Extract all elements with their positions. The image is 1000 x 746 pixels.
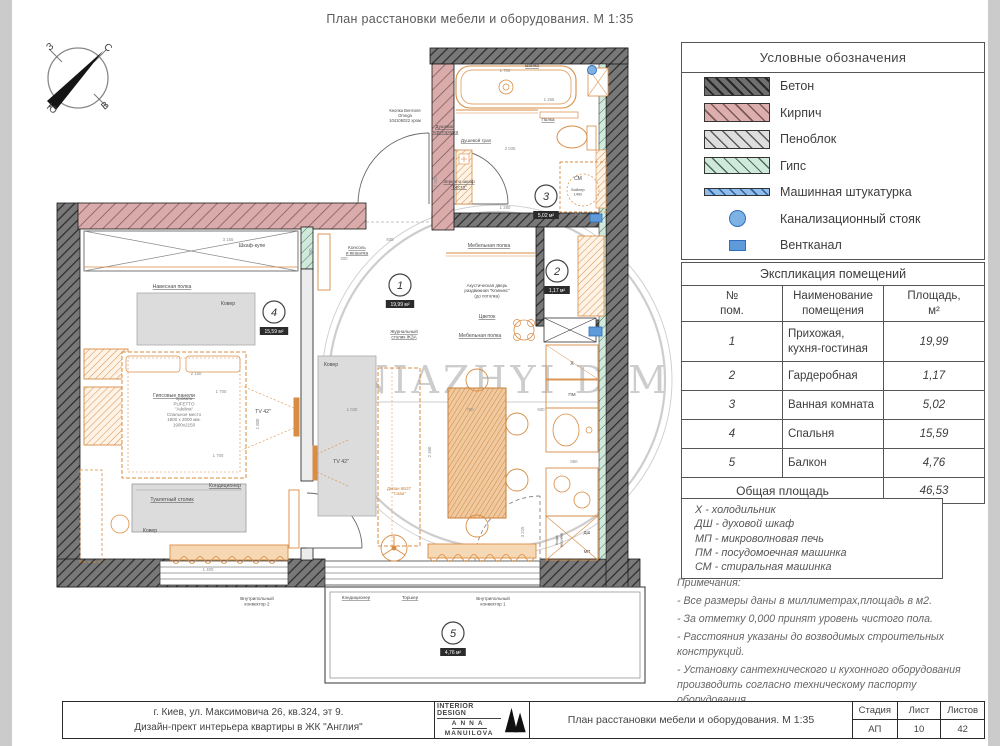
- room-area-cell: 15,59: [884, 420, 985, 449]
- plan-label: Кнопка ВентиляOmega104106022 хром: [389, 108, 421, 123]
- plan-label: Кондиционер: [342, 595, 371, 600]
- plan-label: ДШ: [584, 530, 591, 535]
- room-number-cell: 2: [682, 362, 783, 391]
- room-name-cell: Балкон: [783, 449, 884, 478]
- room-area-text: 5,02 м²: [538, 213, 555, 219]
- plan-label: Полка: [541, 117, 555, 122]
- legend-label: Канализационный стояк: [780, 212, 920, 226]
- logo-line-2: ANNA: [452, 719, 487, 729]
- plan-label: 1 400: [203, 567, 214, 572]
- room-name-cell: Гардеробная: [783, 362, 884, 391]
- legend-label: Кирпич: [780, 106, 821, 120]
- title-block: г. Киев, ул. Максимовича 26, кв.324, эт …: [62, 701, 985, 739]
- plan-label: Консольи вешалка: [346, 245, 369, 255]
- plan-label: СМ: [574, 176, 582, 182]
- vent-channel-icon: [589, 327, 602, 336]
- room-name-cell: Ванная комната: [783, 391, 884, 420]
- plan-label: 1 700: [500, 68, 511, 73]
- concrete-hatch-swatch: [704, 77, 770, 96]
- windows: [160, 561, 540, 585]
- legend-label: Бетон: [780, 79, 814, 93]
- room-area-cell: 1,17: [884, 362, 985, 391]
- plan-label: Кофемашина: [555, 532, 563, 547]
- svg-text:З: З: [45, 41, 57, 53]
- plan-label: 2 035: [505, 146, 516, 151]
- drawing-title: План расстановки мебели и оборудования. …: [530, 702, 853, 738]
- plan-label: Кондиционер: [209, 483, 241, 489]
- plan-label: 2 150: [191, 371, 202, 376]
- plan-label: Мебельная полка: [459, 333, 502, 339]
- table-row: 4Спальня15,59: [682, 420, 985, 449]
- plan-label: 1 700: [216, 389, 227, 394]
- plan-label: 2 203: [433, 176, 438, 187]
- legend-item: Машинная штукатурка: [682, 179, 984, 206]
- plan-label: 1 030: [347, 407, 358, 412]
- room-name-cell: Спальня: [783, 420, 884, 449]
- plan-label: МП: [584, 549, 591, 554]
- address-line-1: г. Киев, ул. Максимовича 26, кв.324, эт …: [154, 705, 344, 720]
- room-number: 4: [271, 307, 277, 319]
- plan-label: Диван 6Б37"Сава": [387, 486, 412, 496]
- plan-label: Торшер: [402, 595, 419, 600]
- brick-hatch-swatch: [704, 103, 770, 122]
- foamblock-hatch-swatch: [704, 130, 770, 149]
- notes-title: Примечания:: [677, 576, 991, 591]
- vent-channel-icon: [729, 240, 746, 251]
- room-number-cell: 1: [682, 322, 783, 362]
- legend-label: Вентканал: [780, 238, 842, 252]
- plan-label: TV 42": [333, 459, 349, 465]
- abbreviation-item: СМ - стиральная машинка: [695, 560, 936, 574]
- designer-logo: INTERIOR DESIGN ANNA MANUILOVA: [435, 702, 530, 738]
- page-root: { "page": { "title": "План расстановки м…: [0, 0, 1000, 746]
- plan-label: 750: [308, 248, 313, 256]
- stage-value: АП: [853, 720, 897, 738]
- rooms-tbody: Экспликация помещений № пом. Наименовани…: [682, 263, 985, 504]
- room-area-text: 15,59 м²: [264, 329, 283, 335]
- plan-label: Ковер: [143, 528, 157, 534]
- legend-item: Бетон: [682, 73, 984, 100]
- note-item: - Все размеры даны в миллиметрах,площадь…: [677, 594, 991, 609]
- legend-items: БетонКирпичПеноблокГипсМашинная штукатур…: [682, 73, 984, 259]
- room-number-cell: 4: [682, 420, 783, 449]
- abbreviation-item: ДШ - духовой шкаф: [695, 517, 936, 531]
- plan-label: Шкаф-купе: [239, 243, 266, 249]
- plan-label: Навесная полка: [153, 284, 192, 290]
- legend-item: Кирпич: [682, 100, 984, 127]
- room-number: 3: [543, 191, 550, 203]
- sheets-label: Листов: [940, 702, 984, 720]
- vent-channel-icon: [590, 214, 602, 222]
- plan-label: 3 155: [223, 237, 234, 242]
- plan-label: Ковер: [324, 362, 338, 368]
- logo-line-1: INTERIOR DESIGN: [437, 703, 501, 719]
- plan-label: 2 460: [427, 446, 432, 457]
- plan-label: Цветок: [479, 314, 496, 320]
- plan-label: Акустическая дверьраздвижная "Клиникс"(д…: [464, 283, 510, 298]
- plan-label: 3 225: [520, 526, 525, 537]
- legend-item: Вентканал: [682, 232, 984, 259]
- plan-label: 550: [570, 459, 578, 464]
- plan-label: Внутрипольныйконвектор 2: [240, 595, 274, 606]
- plan-label: 935: [386, 237, 394, 242]
- plan-label: 760: [466, 407, 474, 412]
- room-number: 1: [397, 280, 403, 292]
- table-row: 1Прихожая, кухня-гостиная19,99: [682, 322, 985, 362]
- plan-label: Душевой трап: [461, 137, 492, 143]
- legend-label: Гипс: [780, 159, 806, 173]
- sewer-riser-circle-icon: [729, 210, 746, 227]
- table-row: 5Балкон4,76: [682, 449, 985, 478]
- legend-label: Пеноблок: [780, 132, 836, 146]
- plan-label: ТV 42": [255, 409, 271, 415]
- rooms-table: Экспликация помещений № пом. Наименовани…: [681, 262, 985, 504]
- legend-item: Пеноблок: [682, 126, 984, 153]
- stage-label: Стадия: [853, 702, 897, 720]
- room-area-cell: 5,02: [884, 391, 985, 420]
- col-header-number: № пом.: [682, 286, 783, 322]
- svg-text:В: В: [99, 100, 111, 113]
- plan-label: Туалетный столик: [150, 496, 194, 503]
- machine-plaster-swatch: [704, 188, 770, 196]
- plan-label: 1 700: [213, 453, 224, 458]
- room-area-cell: 4,76: [884, 449, 985, 478]
- note-item: - Расстояния указаны до возводимых строи…: [677, 630, 991, 660]
- room-number: 2: [553, 266, 560, 278]
- room-number-cell: 3: [682, 391, 783, 420]
- table-row: 3Ванная комната5,02: [682, 391, 985, 420]
- legend-box: Условные обозначения БетонКирпичПеноблок…: [681, 42, 985, 260]
- abbreviations-box: Х - холодильникДШ - духовой шкафМП - мик…: [681, 498, 943, 579]
- sheet-value: 10: [897, 720, 941, 738]
- plan-label: 1 800: [255, 418, 260, 429]
- room-area-text: 19,99 м²: [390, 302, 409, 308]
- room-area-text: 1,17 м²: [549, 288, 566, 294]
- table-row: 2Гардеробная1,17: [682, 362, 985, 391]
- project-address: г. Киев, ул. Максимовича 26, кв.324, эт …: [63, 702, 435, 738]
- abbreviation-item: МП - микроволновая печь: [695, 532, 936, 546]
- compass-rose-icon: С З В Ю: [44, 41, 114, 117]
- legend-item: Гипс: [682, 153, 984, 180]
- plan-label: Журнальныйстолик ЖЗА: [390, 328, 418, 339]
- plan-label: Внутрипольныйконвектор 1: [476, 595, 510, 606]
- room-area-cell: 19,99: [884, 322, 985, 362]
- sheet-label: Лист: [897, 702, 941, 720]
- plan-label: 1 265: [544, 97, 555, 102]
- plan-label: Ковер: [221, 301, 235, 307]
- gypsum-hatch-swatch: [704, 157, 770, 174]
- legend-item: Канализационный стояк: [682, 206, 984, 233]
- room-number: 5: [450, 628, 457, 640]
- room-area-text: 4,76 м²: [445, 650, 462, 656]
- logo-line-3: MANUILOVA: [445, 729, 494, 737]
- plan-label: Мебельная полка: [468, 243, 511, 249]
- legend-label: Машинная штукатурка: [780, 185, 912, 199]
- rooms-table-title: Экспликация помещений: [682, 263, 985, 286]
- room-name-cell: Прихожая, кухня-гостиная: [783, 322, 884, 362]
- sheets-value: 42: [940, 720, 984, 738]
- stage-sheet-grid: Стадия Лист Листов АП 10 42: [853, 702, 984, 738]
- plan-label: 400: [340, 256, 348, 261]
- plan-label: Бойлер140л: [571, 188, 584, 196]
- col-header-name: Наименование помещения: [783, 286, 884, 322]
- col-header-area: Площадь, м²: [884, 286, 985, 322]
- logo-m-mark-icon: [504, 706, 527, 734]
- note-item: - За отметку 0,000 принят уровень чистог…: [677, 612, 991, 627]
- plan-label: 1 280: [500, 205, 511, 210]
- abbreviation-item: ПМ - посудомоечная машинка: [695, 546, 936, 560]
- plan-label: Душеваяперегородка: [432, 124, 459, 134]
- abbreviation-item: Х - холодильник: [695, 503, 936, 517]
- legend-title: Условные обозначения: [682, 43, 984, 73]
- address-line-2: Дизайн-прект интерьера квартиры в ЖК "Ан…: [134, 720, 362, 735]
- furniture: [80, 66, 608, 564]
- plan-label: Ванна: [525, 63, 539, 69]
- plan-label: Х: [570, 361, 574, 367]
- plan-label: ПМ: [568, 392, 575, 397]
- plan-label: 600: [574, 212, 582, 217]
- sewer-riser-icon: [588, 66, 597, 75]
- room-number-cell: 5: [682, 449, 783, 478]
- plan-label: 930: [537, 407, 545, 412]
